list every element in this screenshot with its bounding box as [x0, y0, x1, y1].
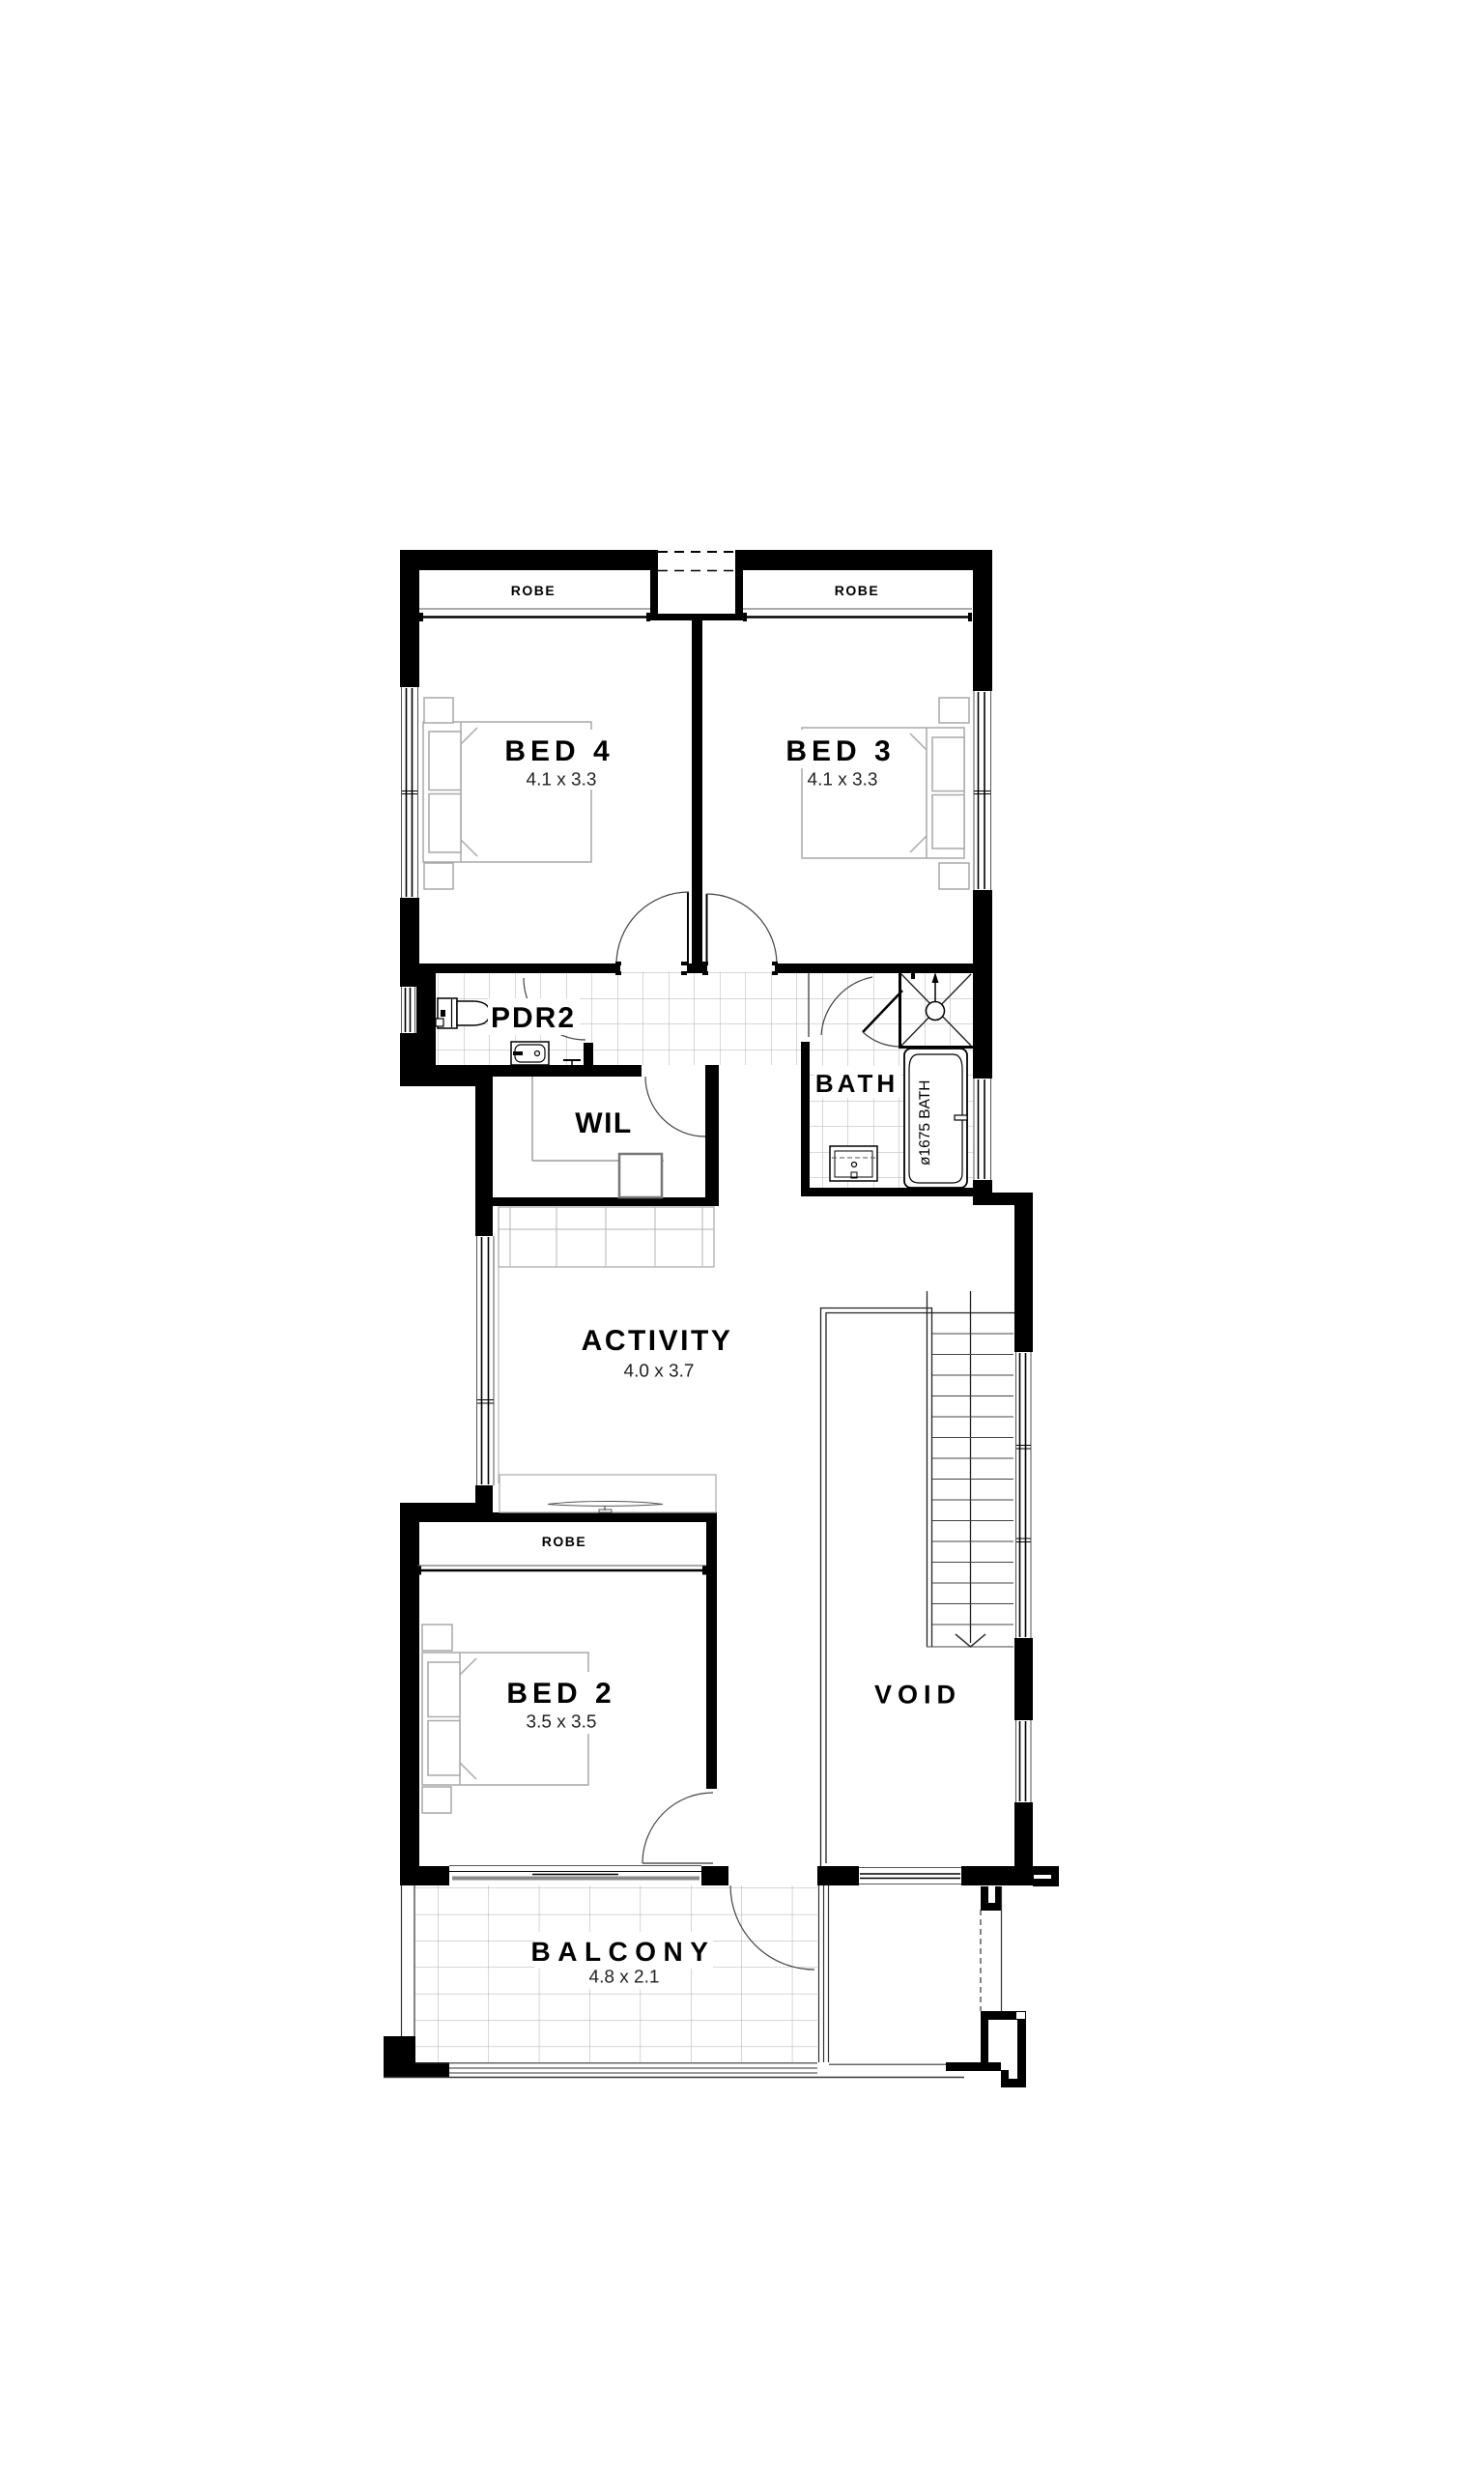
- svg-text:3.5 x 3.5: 3.5 x 3.5: [527, 1712, 597, 1733]
- svg-text:4.1 x 3.3: 4.1 x 3.3: [808, 770, 878, 791]
- svg-text:BATH: BATH: [815, 1069, 899, 1098]
- svg-text:ROBE: ROBE: [835, 583, 879, 598]
- svg-text:ø1675 BATH: ø1675 BATH: [917, 1080, 933, 1165]
- svg-text:ROBE: ROBE: [511, 583, 556, 598]
- svg-text:4.1 x 3.3: 4.1 x 3.3: [527, 770, 597, 791]
- svg-text:BED 3: BED 3: [785, 735, 895, 767]
- svg-text:WIL: WIL: [575, 1108, 632, 1139]
- svg-text:BALCONY: BALCONY: [531, 1937, 716, 1967]
- svg-text:BED 4: BED 4: [504, 735, 614, 767]
- svg-text:BED 2: BED 2: [506, 1678, 615, 1710]
- svg-text:VOID: VOID: [874, 1681, 961, 1710]
- svg-text:ACTIVITY: ACTIVITY: [582, 1325, 733, 1357]
- svg-text:4.0 x 3.7: 4.0 x 3.7: [624, 1362, 695, 1382]
- svg-text:PDR2: PDR2: [491, 1002, 576, 1034]
- svg-text:4.8 x 2.1: 4.8 x 2.1: [589, 1968, 660, 1988]
- svg-text:ROBE: ROBE: [542, 1534, 586, 1549]
